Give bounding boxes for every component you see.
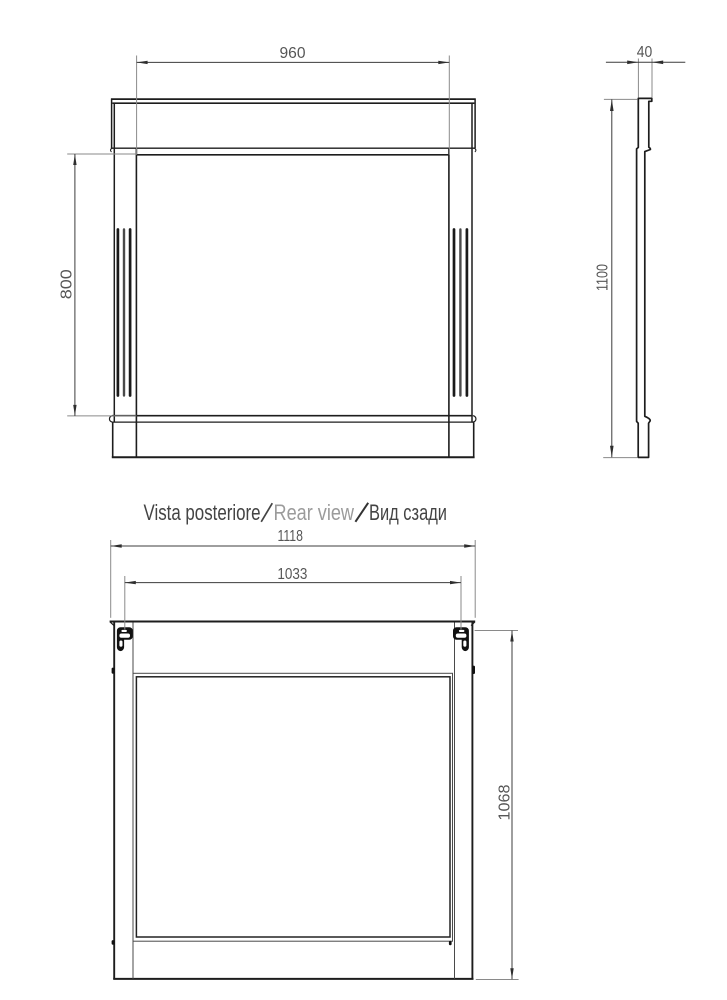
svg-text:960: 960 xyxy=(280,45,306,62)
svg-text:Vista posteriore: Vista posteriore xyxy=(144,500,261,525)
svg-text:1033: 1033 xyxy=(277,566,307,583)
svg-text:40: 40 xyxy=(637,44,653,61)
svg-text:800: 800 xyxy=(58,269,75,299)
svg-text:Вид сзади: Вид сзади xyxy=(369,500,447,525)
svg-text:1068: 1068 xyxy=(496,784,513,820)
svg-text:1100: 1100 xyxy=(595,264,612,291)
svg-text:Rear view: Rear view xyxy=(274,500,355,525)
svg-text:1118: 1118 xyxy=(277,528,303,545)
